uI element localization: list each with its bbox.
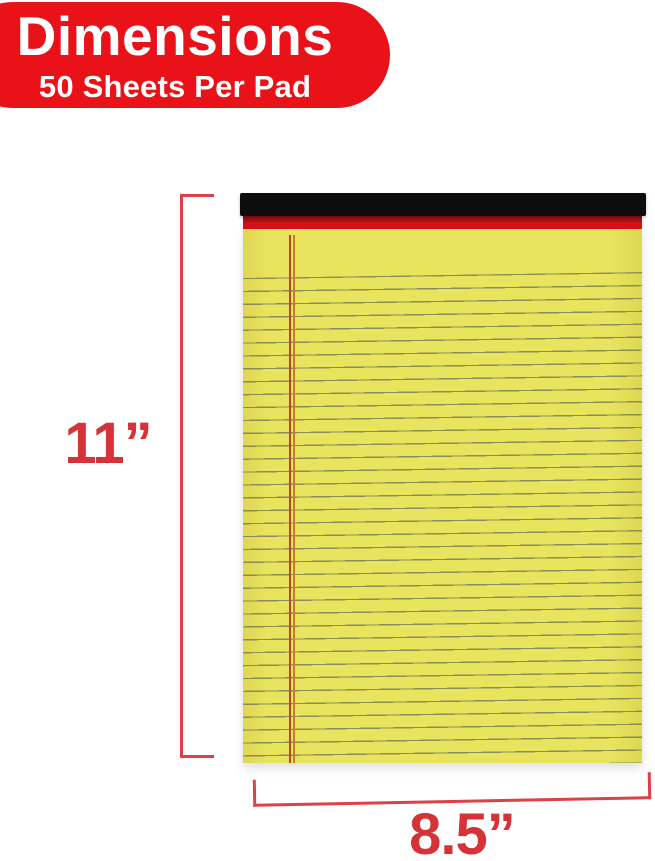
height-dimension-bracket bbox=[180, 194, 214, 758]
product-dimensions-image: Dimensions 50 Sheets Per Pad 11” 8.5” bbox=[0, 0, 655, 861]
ruled-lines bbox=[243, 272, 642, 763]
dimensions-badge: Dimensions 50 Sheets Per Pad bbox=[0, 2, 390, 108]
pad-binding-strip bbox=[240, 193, 646, 216]
legal-pad bbox=[243, 193, 642, 763]
badge-title: Dimensions bbox=[17, 9, 334, 64]
margin-line-right bbox=[293, 235, 295, 763]
badge-subtitle: 50 Sheets Per Pad bbox=[39, 71, 311, 102]
height-dimension-label: 11” bbox=[52, 412, 164, 476]
pad-paper bbox=[243, 229, 642, 763]
pad-binding-accent-strip bbox=[243, 216, 642, 229]
width-dimension-label: 8.5” bbox=[352, 803, 572, 861]
margin-line-left bbox=[289, 235, 291, 763]
